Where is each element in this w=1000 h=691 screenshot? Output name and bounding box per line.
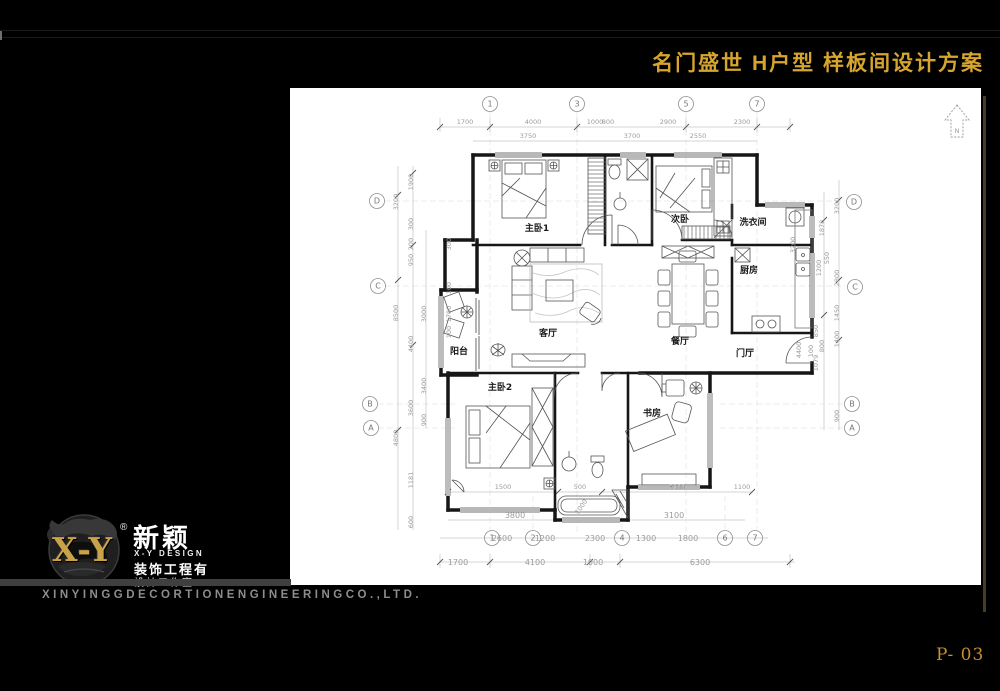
dim-label: 800 (818, 340, 826, 352)
dim-label: 850 (812, 325, 820, 337)
room-label-study: 书房 (643, 407, 661, 419)
interior-walls (448, 155, 812, 520)
dim-label: 3200 (789, 237, 797, 254)
grid-label: 7 (752, 534, 757, 543)
windows (439, 153, 814, 522)
dim-label: 3000 (420, 306, 428, 323)
room-label-master-bedroom-2: 主卧2 (488, 381, 512, 393)
north-label: N (955, 127, 960, 135)
dims-left: 3200 8500 4800 1900 300 200 950 4400 360… (392, 174, 453, 528)
dim-label: 3700 (624, 132, 641, 140)
room-label-kitchen: 厨房 (740, 264, 758, 276)
dim-label: 1450 (833, 305, 841, 322)
master1-furniture (489, 158, 606, 234)
dim-label: 1200 (815, 260, 823, 277)
dim-label: 300 (407, 218, 415, 230)
header-rule-2 (0, 37, 1000, 38)
master2-furniture (452, 388, 553, 492)
grid-label: 7 (754, 100, 759, 109)
dim-label: 1300 (636, 534, 656, 543)
dim-label: 2800 (833, 270, 841, 287)
grid-label: B (849, 400, 855, 409)
bathroom1-fixtures (608, 159, 648, 210)
dims-right: 3200 2800 1450 1400 900 1878 550 1200 85… (789, 198, 841, 422)
dim-label: 1100 (734, 483, 751, 491)
room-label-second-bedroom: 次卧 (671, 213, 689, 225)
dim-label: 3600 (407, 400, 415, 417)
floorplan-drawing: 主卧1 次卧 洗衣间 厨房 客厅 餐厅 阳台 门厅 主卧2 书房 1 3 5 7… (290, 88, 981, 585)
dim-label: 3100 (664, 511, 684, 520)
dining-room-furniture (658, 251, 718, 337)
north-arrow-icon: N (945, 105, 969, 137)
dim-label: 550 (823, 252, 831, 264)
grid-label: 6 (722, 534, 727, 543)
second-bedroom-furniture (656, 158, 732, 258)
room-label-living-room: 客厅 (538, 327, 557, 339)
dim-label: 1700 (448, 558, 468, 567)
dim-label: 1000 (587, 118, 604, 126)
study-furniture (625, 380, 702, 485)
dim-label: 600 (407, 516, 415, 528)
dim-label: 8500 (392, 305, 400, 322)
dim-label: 1878 (818, 220, 826, 237)
paper-edge-shadow (983, 96, 986, 612)
room-label-master-bedroom-1: 主卧1 (525, 222, 549, 234)
header-rule-1 (0, 30, 1000, 31)
dim-label: 1900 (407, 174, 415, 191)
grid-label: 1 (487, 100, 492, 109)
page-number: P- 03 (936, 645, 984, 665)
dim-label: 1500 (495, 483, 512, 491)
dim-label: 1000 (573, 498, 589, 516)
dim-label: 100 (807, 345, 815, 357)
dim-label: 1400 (833, 331, 841, 348)
living-room-furniture (491, 248, 602, 367)
dim-label: 2550 (690, 132, 707, 140)
footer-divider-bar (0, 579, 291, 586)
dim-label: 2600 (492, 534, 512, 543)
dim-label: 3400 (420, 378, 428, 395)
dim-label: 950 (407, 254, 415, 266)
room-label-dining-room: 餐厅 (670, 335, 689, 347)
dim-label: 1700 (457, 118, 474, 126)
room-label-foyer: 门厅 (736, 347, 754, 359)
exterior-walls (441, 155, 812, 520)
grid-label: B (367, 400, 373, 409)
logo-name-en: X-Y DESIGN (134, 549, 204, 558)
dim-label: 900 (833, 410, 841, 422)
dim-label: 800 (602, 118, 614, 126)
presentation-slide: { "title": "名门盛世 H户型 样板间设计方案", "page_num… (0, 0, 1000, 691)
logo-monogram: X-Y (52, 530, 113, 569)
room-label-balcony: 阳台 (450, 345, 468, 357)
dimension-lines (398, 118, 839, 568)
dim-label: 900 (420, 414, 428, 426)
dim-label: 300 (445, 238, 453, 250)
dim-label: 3200 (392, 194, 400, 211)
dim-label: 4000 (525, 118, 542, 126)
grid-bubbles (363, 97, 863, 546)
dim-label: 1200 (535, 534, 555, 543)
dim-label: 4800 (392, 430, 400, 447)
grid-label: 3 (574, 100, 579, 109)
dim-label: 3800 (505, 511, 525, 520)
registered-mark: ® (120, 522, 127, 533)
company-name-footer: XINYINGGDECORTIONENGINEERINGCO.,LTD. (42, 589, 422, 601)
grid-label: A (849, 424, 855, 433)
dim-label: 2300 (585, 534, 605, 543)
room-label-laundry: 洗衣间 (739, 216, 766, 228)
dim-label: 3750 (520, 132, 537, 140)
dim-label: 100 (445, 326, 453, 338)
dim-label: 4100 (525, 558, 545, 567)
edge-notch (0, 31, 2, 40)
dim-label: 3200 (833, 198, 841, 215)
dim-label: 500 (574, 483, 586, 491)
dim-label: 1000 (583, 558, 603, 567)
dim-label: 6300 (690, 558, 710, 567)
grid-label: C (852, 283, 858, 292)
grid-label: A (368, 424, 374, 433)
dim-label: 3900 (669, 483, 686, 491)
dim-label: 2300 (734, 118, 751, 126)
dim-label: 1800 (678, 534, 698, 543)
dim-label: 100 (445, 282, 453, 294)
grid-label: D (374, 197, 380, 206)
dims-top: 1700 4000 1000 800 2900 2300 3750 3700 2… (457, 118, 751, 140)
dim-label: 2900 (660, 118, 677, 126)
dim-label: 1700 (445, 306, 453, 323)
dim-label: 4400 (795, 342, 803, 359)
grid-label: D (851, 198, 857, 207)
dim-label: 1181 (407, 472, 415, 489)
grid-label: 4 (619, 534, 624, 543)
page-title: 名门盛世 H户型 样板间设计方案 (652, 47, 984, 77)
dim-label: 200 (407, 238, 415, 250)
company-logo: X-Y ® 新颖 X-Y DESIGN 装饰工程有 設計工作室 (44, 508, 244, 588)
dim-label: 4400 (407, 336, 415, 353)
grid-label: C (375, 282, 381, 291)
grid-label: 5 (683, 100, 688, 109)
floorplan-paper: 主卧1 次卧 洗衣间 厨房 客厅 餐厅 阳台 门厅 主卧2 书房 1 3 5 7… (290, 88, 981, 585)
